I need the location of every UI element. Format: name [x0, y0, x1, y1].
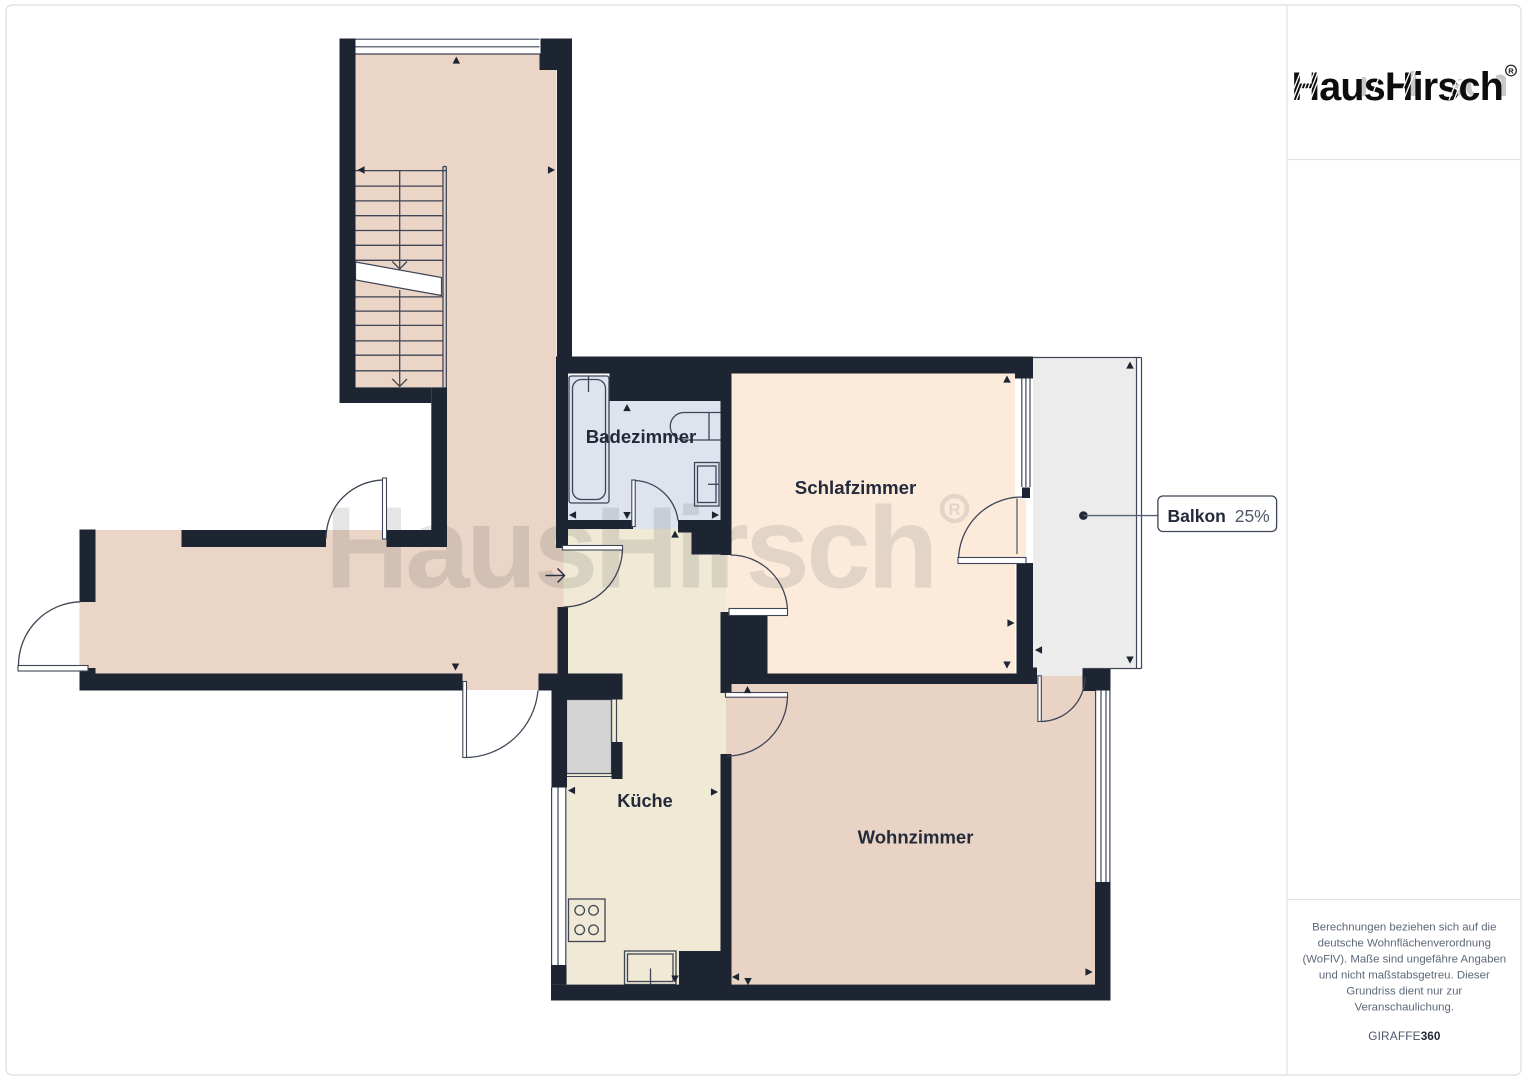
svg-text:R: R: [1508, 67, 1514, 76]
svg-text:Berechnungen beziehen sich auf: Berechnungen beziehen sich auf die: [1312, 922, 1496, 934]
svg-text:Badezimmer: Badezimmer: [586, 426, 697, 447]
svg-text:R: R: [948, 500, 960, 519]
svg-text:HausHirsch: HausHirsch: [325, 483, 935, 613]
svg-text:deutsche Wohnflächenverordnung: deutsche Wohnflächenverordnung: [1318, 938, 1491, 950]
svg-text:und nicht maßstabsgetreu. Dies: und nicht maßstabsgetreu. Dieser: [1319, 970, 1490, 982]
svg-text:(WoFlV). Maße sind ungefähre A: (WoFlV). Maße sind ungefähre Angaben: [1302, 954, 1506, 966]
svg-text:GIRAFFE360: GIRAFFE360: [1368, 1029, 1441, 1043]
svg-text:Schlafzimmer: Schlafzimmer: [795, 477, 917, 498]
svg-text:Küche: Küche: [617, 791, 673, 811]
svg-text:HausHirsch: HausHirsch: [1292, 65, 1504, 109]
svg-text:Balkon 25%: Balkon 25%: [1168, 506, 1270, 526]
svg-text:Grundriss dient nur zur: Grundriss dient nur zur: [1346, 986, 1462, 998]
svg-text:Wohnzimmer: Wohnzimmer: [858, 827, 974, 848]
svg-text:Veranschaulichung.: Veranschaulichung.: [1355, 1002, 1454, 1014]
